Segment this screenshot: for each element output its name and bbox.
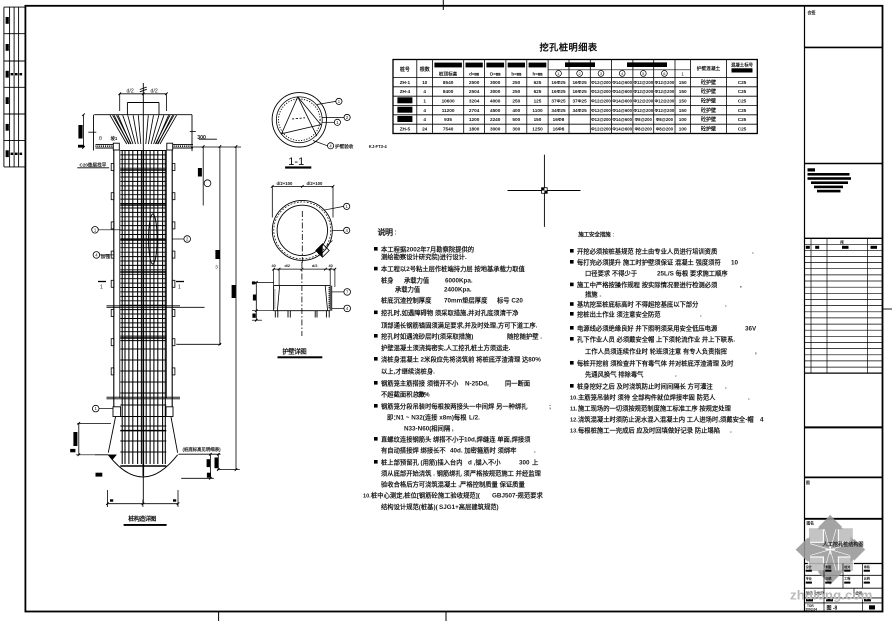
svg-text:100: 100 [679, 117, 687, 122]
svg-text:Φ14@600: Φ14@600 [612, 108, 632, 113]
svg-text:制图: 制图 [825, 564, 831, 569]
svg-text:8540: 8540 [443, 80, 454, 85]
svg-text:N-25Dd,: N-25Dd, [465, 380, 489, 387]
svg-text:本工程据2002年7月勘察院提供的: 本工程据2002年7月勘察院提供的 [380, 244, 474, 253]
svg-text:16Φ25: 16Φ25 [572, 80, 587, 85]
svg-text:比例: 比例 [864, 576, 870, 581]
svg-text:150: 150 [679, 89, 687, 94]
svg-text:挖孔时如遇流砂层时(须采取措施): 挖孔时如遇流砂层时(须采取措施) [381, 331, 473, 340]
svg-text:d/2+100: d/2+100 [277, 181, 293, 186]
svg-text:每桩开挖前 须检查井下有毒气体 并对桩底浮渣清理 及时: 每桩开挖前 须检查井下有毒气体 并对桩底浮渣清理 及时 [577, 358, 734, 367]
svg-text:测绘勘察设计研究院)进行设计.: 测绘勘察设计研究院)进行设计. [381, 252, 467, 261]
svg-text:根数: 根数 [420, 66, 431, 73]
svg-text:500: 500 [512, 117, 520, 122]
svg-text:.: . [520, 481, 522, 488]
svg-text:施工现场的一切须按规范制度施工标准工序 按规定处理: 施工现场的一切须按规范制度施工标准工序 按规定处理 [578, 403, 732, 412]
svg-text:须从底部开始浇筑 . 钢筋绑扎 须严格按规范施工 并经监理: 须从底部开始浇筑 . 钢筋绑扎 须严格按规范施工 并经监理 [381, 468, 542, 477]
svg-text:34Φ25: 34Φ25 [572, 108, 587, 113]
svg-text:桩号: 桩号 [400, 66, 410, 73]
svg-text:每打完必须提升 施工时护壁须保证 混凝土 强度须符: 每打完必须提升 施工时护壁须保证 混凝土 强度须符 [577, 257, 721, 266]
svg-text:设计: 设计 [806, 564, 813, 569]
svg-text:Φ8@200: Φ8@200 [656, 127, 674, 132]
svg-text:16Φ8: 16Φ8 [553, 127, 565, 132]
svg-text:2704: 2704 [469, 108, 480, 113]
svg-text:直螺纹连接钢筋头 绑搭不小于: 直螺纹连接钢筋头 绑搭不小于 [381, 434, 465, 443]
svg-text:Φ12@200: Φ12@200 [633, 99, 653, 104]
svg-text:桩中心测定,桩位[钢筋砼施工验收规范](: 桩中心测定,桩位[钢筋砼施工验收规范]( [371, 490, 481, 499]
svg-text:10: 10 [731, 259, 739, 266]
svg-text:1250: 1250 [532, 127, 543, 132]
svg-text:桩身挖好之后 及时浇筑防止时间间隔长 方可灌注: 桩身挖好之后 及时浇筑防止时间间隔长 方可灌注 [577, 381, 713, 390]
svg-text:坡1: 坡1 [111, 135, 118, 142]
svg-text:.: . [752, 248, 754, 255]
svg-text:本工程以2号粘土层作桩端持力层 按地基承载力取值: 本工程以2号粘土层作桩端持力层 按地基承载力取值 [380, 264, 525, 273]
svg-text:3204: 3204 [469, 99, 480, 104]
svg-text:Φ12@200: Φ12@200 [655, 99, 675, 104]
svg-text:150: 150 [534, 117, 542, 122]
svg-text:10: 10 [422, 80, 428, 85]
svg-text:Φ12@200: Φ12@200 [633, 89, 653, 94]
svg-text:Φ12@200: Φ12@200 [591, 127, 611, 132]
svg-text:承载力值: 承载力值 [395, 285, 421, 294]
svg-text:(桩底标高见明细表): (桩底标高见明细表) [183, 446, 222, 453]
svg-text:Φ8@200: Φ8@200 [635, 117, 653, 122]
svg-text:日期: 日期 [825, 576, 831, 581]
svg-text:同一断面: 同一断面 [505, 378, 531, 387]
svg-text:2240: 2240 [490, 117, 501, 122]
svg-text:.: . [675, 371, 677, 378]
svg-text:孔下作业人员 必须戴安全帽 上下须轮流作业 井上下联系.: 孔下作业人员 必须戴安全帽 上下须轮流作业 井上下联系. [577, 334, 735, 343]
svg-text:挖孔时,如遇障碍物 须采取措施,并对孔底须清干净: 挖孔时,如遇障碍物 须采取措施,并对孔底须清干净 [381, 308, 519, 317]
svg-text:16Φ25: 16Φ25 [551, 80, 566, 85]
svg-text:h=㎜: h=㎜ [533, 72, 543, 77]
svg-text:4: 4 [423, 108, 426, 113]
svg-text:16Φ25: 16Φ25 [572, 89, 587, 94]
svg-text:3000: 3000 [490, 80, 501, 85]
svg-text:C20垫层找平: C20垫层找平 [80, 161, 107, 168]
svg-text:专业: 专业 [806, 576, 812, 581]
svg-text:2003.04: 2003.04 [806, 607, 818, 611]
svg-text:Φ12@200: Φ12@200 [591, 108, 611, 113]
svg-text:砼护壁: 砼护壁 [701, 79, 716, 86]
svg-text:序: 序 [839, 239, 844, 245]
svg-text:11.: 11. [570, 406, 578, 412]
svg-text:4000: 4000 [490, 99, 501, 104]
svg-text:图 -8: 图 -8 [827, 604, 838, 611]
svg-text:桩底沉渣控制厚度: 桩底沉渣控制厚度 [381, 296, 432, 305]
svg-text:标号 C20: 标号 C20 [496, 296, 523, 305]
svg-text:,: , [740, 282, 742, 289]
svg-text:Φ12@200: Φ12@200 [591, 117, 611, 122]
svg-text:ZH-5: ZH-5 [400, 127, 411, 132]
svg-text:935: 935 [444, 117, 452, 122]
svg-text:ZH-1: ZH-1 [400, 80, 411, 85]
svg-text:C25: C25 [738, 117, 747, 122]
svg-text:：: ： [612, 232, 617, 238]
svg-text:N1 ~ N32(连接 x8m)每根: N1 ~ N32(连接 x8m)每根 [396, 412, 467, 421]
svg-text:随挖随护壁 .: 随挖随护壁 . [507, 331, 542, 340]
svg-text:Φ14@600: Φ14@600 [612, 127, 632, 132]
svg-text:Φ12@200: Φ12@200 [591, 99, 611, 104]
svg-text:400: 400 [512, 108, 520, 113]
svg-text:4: 4 [423, 117, 426, 122]
svg-text:顶部通长钢筋锚固须满足要求,并及时处理,方可下道工序.: 顶部通长钢筋锚固须满足要求,并及时处理,方可下道工序. [381, 320, 538, 329]
svg-text:说明: 说明 [378, 227, 393, 237]
svg-text:d/2: d/2 [151, 88, 158, 94]
svg-text:挖孔桩明细表: 挖孔桩明细表 [540, 42, 598, 53]
svg-text:桩顶标高: 桩顶标高 [439, 71, 458, 78]
svg-text:d=㎜: d=㎜ [469, 72, 479, 77]
svg-text:16Φ25: 16Φ25 [551, 89, 566, 94]
svg-text:结构设计规范(桩基)(: 结构设计规范(桩基)( [381, 502, 439, 511]
svg-text:1: 1 [423, 99, 426, 104]
svg-text:：: ： [394, 231, 400, 237]
svg-text:C25: C25 [738, 108, 747, 113]
svg-text:加强: 加强 [100, 253, 111, 260]
svg-text:.: . [730, 427, 732, 434]
svg-text:护壁混凝土: 护壁混凝土 [697, 65, 721, 72]
svg-text:50%: 50% [417, 391, 430, 398]
svg-text:护壁详图: 护壁详图 [282, 346, 306, 355]
svg-text:B: B [99, 136, 102, 142]
svg-text:Φ12@200: Φ12@200 [655, 80, 675, 85]
svg-text:桩构造详图: 桩构造详图 [128, 515, 156, 523]
svg-text:7540: 7540 [443, 127, 454, 132]
svg-text:d/2+100: d/2+100 [307, 181, 323, 186]
svg-text:Φ12@200: Φ12@200 [591, 89, 611, 94]
svg-text:1: 1 [178, 285, 181, 291]
svg-text:,: , [755, 348, 757, 355]
svg-text:砼护壁: 砼护壁 [701, 116, 716, 123]
svg-text:1-1: 1-1 [288, 156, 304, 168]
svg-text:每根桩施工一完成后 应及时回填做好记录 防止塌陷: 每根桩施工一完成后 应及时回填做好记录 防止塌陷 [578, 425, 720, 434]
svg-text:承载力值: 承载力值 [404, 275, 430, 284]
svg-text:16Φ8: 16Φ8 [553, 117, 565, 122]
svg-text:d/2: d/2 [285, 264, 291, 268]
svg-text:3000: 3000 [490, 127, 501, 132]
svg-text:钢筋笼主筋搭接 须错开不小: 钢筋笼主筋搭接 须错开不小 [381, 378, 459, 387]
svg-text:150: 150 [679, 108, 687, 113]
svg-text:4500: 4500 [490, 108, 501, 113]
svg-text:Φ12@200: Φ12@200 [633, 80, 653, 85]
svg-text:d ,锚入不小: d ,锚入不小 [468, 457, 501, 466]
svg-text:ZH-4: ZH-4 [400, 89, 411, 94]
svg-text:桩上部预留孔 (用筋)插入台内: 桩上部预留孔 (用筋)插入台内 [381, 457, 463, 466]
svg-text:钢筋笼分段吊装时每根按两接头一中间焊 另一种绑扎: 钢筋笼分段吊装时每根按两接头一中间焊 另一种绑扎 [381, 401, 528, 410]
svg-text:4: 4 [423, 89, 426, 94]
svg-text:300: 300 [197, 135, 206, 141]
svg-text:1: 1 [681, 71, 684, 76]
svg-text:会签: 会签 [808, 9, 817, 15]
svg-text:有自动搭接焊 绑接长不: 有自动搭接焊 绑接长不 [381, 445, 446, 454]
svg-text:人工挖孔桩结构图: 人工挖孔桩结构图 [823, 541, 864, 548]
svg-text:浇筑混凝土时须防止泥水混入混凝土内 工人进场时,须戴安全-帽: 浇筑混凝土时须防止泥水混入混凝土内 工人进场时,须戴安全-帽 [578, 414, 754, 423]
svg-text:GBJ507-规范要求: GBJ507-规范要求 [492, 490, 543, 499]
svg-text:施工中严格按操作规程 按实际情况要进行检测必须: 施工中严格按操作规程 按实际情况要进行检测必须 [577, 280, 718, 289]
svg-text:N33-N60(相间隔 ,: N33-N60(相间隔 , [404, 423, 454, 432]
svg-text:电源线必须绝缘良好 井下照明须采用安全低压电源: 电源线必须绝缘良好 井下照明须采用安全低压电源 [577, 323, 718, 332]
svg-text:150: 150 [679, 80, 687, 85]
svg-text:Φ12@200: Φ12@200 [591, 80, 611, 85]
svg-text:Φ14@600: Φ14@600 [612, 117, 632, 122]
svg-text:3000: 3000 [490, 89, 501, 94]
svg-text:625: 625 [534, 80, 542, 85]
svg-text:工作人员须连续作业时 轮班须注意 有专人负责指挥: 工作人员须连续作业时 轮班须注意 有专人负责指挥 [585, 346, 728, 355]
svg-text:基坑挖至桩底标高时 不得超挖基底以下部分: 基坑挖至桩底标高时 不得超挖基底以下部分 [576, 300, 699, 309]
svg-text:Φ8@200: Φ8@200 [635, 127, 653, 132]
svg-text:12.: 12. [570, 417, 578, 423]
svg-text:2500: 2500 [469, 80, 480, 85]
svg-text:250: 250 [512, 99, 520, 104]
svg-text:3: 3 [215, 265, 218, 270]
svg-text:图名: 图名 [807, 521, 815, 526]
svg-text:C25: C25 [738, 127, 747, 132]
svg-text:4: 4 [760, 416, 764, 423]
svg-text:.: . [718, 270, 720, 277]
svg-text:图: 图 [806, 480, 810, 485]
svg-text:砼护壁: 砼护壁 [701, 126, 716, 133]
svg-text:Φ8@200: Φ8@200 [656, 117, 674, 122]
svg-text:d/2: d/2 [127, 88, 134, 94]
svg-text:先通风换气 排除毒气: 先通风换气 排除毒气 [585, 369, 644, 378]
svg-text:护壁混凝土须浇捣密实,人工挖孔桩土方须运走.: 护壁混凝土须浇捣密实,人工挖孔桩土方须运走. [381, 343, 511, 352]
svg-text:L/2.: L/2. [469, 414, 480, 421]
svg-text:开挖必须按桩基规范 挖土由专业人员进行培训资质: 开挖必须按桩基规范 挖土由专业人员进行培训资质 [577, 246, 718, 255]
svg-text:Φ12@200: Φ12@200 [655, 108, 675, 113]
svg-text:C25: C25 [738, 80, 747, 85]
svg-text:校对: 校对 [843, 564, 851, 569]
svg-text:1800: 1800 [469, 127, 480, 132]
svg-text:10.: 10. [570, 395, 578, 401]
svg-text:措施 .: 措施 . [585, 290, 601, 299]
svg-text:zhulong.com: zhulong.com [790, 588, 872, 603]
svg-text:10d,焊缝连 单面,焊接须: 10d,焊缝连 单面,焊接须 [464, 434, 531, 443]
svg-text:40d. 加密箍筋时 须绑牢: 40d. 加密箍筋时 须绑牢 [450, 445, 517, 454]
svg-text:SJG1+高层建筑规范): SJG1+高层建筑规范) [439, 502, 499, 511]
svg-text:625: 625 [534, 89, 542, 94]
svg-text:300: 300 [512, 127, 520, 132]
svg-text:2400Kpa.: 2400Kpa. [444, 287, 472, 294]
svg-text:施工安全措施: 施工安全措施 [578, 230, 611, 238]
svg-text:C25: C25 [738, 89, 747, 94]
svg-text:浇桩身混凝土 2米段应先将浇筑前 将桩底浮渣清理: 浇桩身混凝土 2米段应先将浇筑前 将桩底浮渣清理 [381, 354, 521, 363]
svg-text:.: . [748, 394, 750, 401]
svg-text:1200: 1200 [469, 117, 480, 122]
svg-text:;: ; [549, 403, 551, 410]
svg-text:b=㎜: b=㎜ [511, 72, 521, 77]
svg-text:以上,才继续浇桩身.: 以上,才继续浇桩身. [381, 366, 435, 375]
svg-text:150: 150 [679, 99, 687, 104]
svg-text:70mm垫层厚度: 70mm垫层厚度 [444, 296, 488, 305]
svg-text:护壁验收: 护壁验收 [335, 143, 354, 150]
svg-text:8400: 8400 [443, 89, 454, 94]
svg-text:KJ-FT3-4: KJ-FT3-4 [369, 144, 388, 149]
svg-text:.: . [725, 302, 727, 309]
svg-text:砼护壁: 砼护壁 [701, 98, 716, 105]
svg-text:验收合格后方可浇筑混凝土 ,严格控制质量 保证质量: 验收合格后方可浇筑混凝土 ,严格控制质量 保证质量 [381, 479, 525, 488]
svg-text:C25: C25 [738, 99, 747, 104]
svg-text:Φ12@200: Φ12@200 [655, 89, 675, 94]
svg-text:审核: 审核 [864, 564, 871, 569]
svg-text:40: 40 [272, 264, 276, 268]
svg-text:1: 1 [100, 285, 103, 291]
svg-text:混凝土标号: 混凝土标号 [731, 62, 754, 69]
svg-text:口径要求 不得少于: 口径要求 不得少于 [585, 268, 638, 277]
svg-text:.: . [725, 383, 727, 390]
svg-text:d/2: d/2 [312, 264, 318, 268]
svg-text:达80%: 达80% [522, 354, 541, 363]
svg-text:37Φ25: 37Φ25 [572, 99, 587, 104]
svg-text:.: . [534, 447, 536, 454]
svg-text:10.: 10. [363, 493, 371, 499]
svg-text:300: 300 [519, 459, 530, 466]
svg-text:250: 250 [512, 89, 520, 94]
svg-text:250: 250 [512, 80, 520, 85]
svg-text:砼护壁: 砼护壁 [701, 107, 716, 114]
svg-text:2504: 2504 [469, 89, 480, 94]
svg-text:砼护壁: 砼护壁 [701, 88, 716, 95]
svg-text:Φ14@600: Φ14@600 [612, 89, 632, 94]
svg-text:1100: 1100 [532, 108, 543, 113]
svg-text:6000Kpa.: 6000Kpa. [445, 277, 473, 284]
svg-text:工程: 工程 [844, 576, 851, 581]
svg-text:挖桩出土作业 须注意安全防范: 挖桩出土作业 须注意安全防范 [577, 309, 661, 318]
svg-text:上: 上 [532, 457, 539, 466]
svg-text:桩身: 桩身 [381, 275, 394, 284]
svg-text:34Φ25: 34Φ25 [551, 108, 566, 113]
svg-text:36V: 36V [745, 325, 757, 332]
svg-text:10600: 10600 [442, 99, 455, 104]
svg-text:13.: 13. [570, 428, 578, 434]
svg-text:100: 100 [679, 127, 687, 132]
svg-text:Φ14@600: Φ14@600 [612, 80, 632, 85]
svg-text:37Φ25: 37Φ25 [551, 99, 566, 104]
svg-text:Φ12@200: Φ12@200 [633, 108, 653, 113]
svg-text:24: 24 [422, 127, 428, 132]
svg-text:11200: 11200 [442, 108, 455, 113]
svg-text:D=㎜: D=㎜ [490, 72, 501, 77]
svg-text:.: . [700, 311, 702, 318]
svg-text:125: 125 [534, 99, 542, 104]
svg-text:主筋笼吊装时 须待 全部构件就位焊接牢固 防范人: 主筋笼吊装时 须待 全部构件就位焊接牢固 防范人 [578, 392, 716, 401]
svg-text:40: 40 [329, 264, 333, 268]
svg-text:Φ14@600: Φ14@600 [612, 99, 632, 104]
